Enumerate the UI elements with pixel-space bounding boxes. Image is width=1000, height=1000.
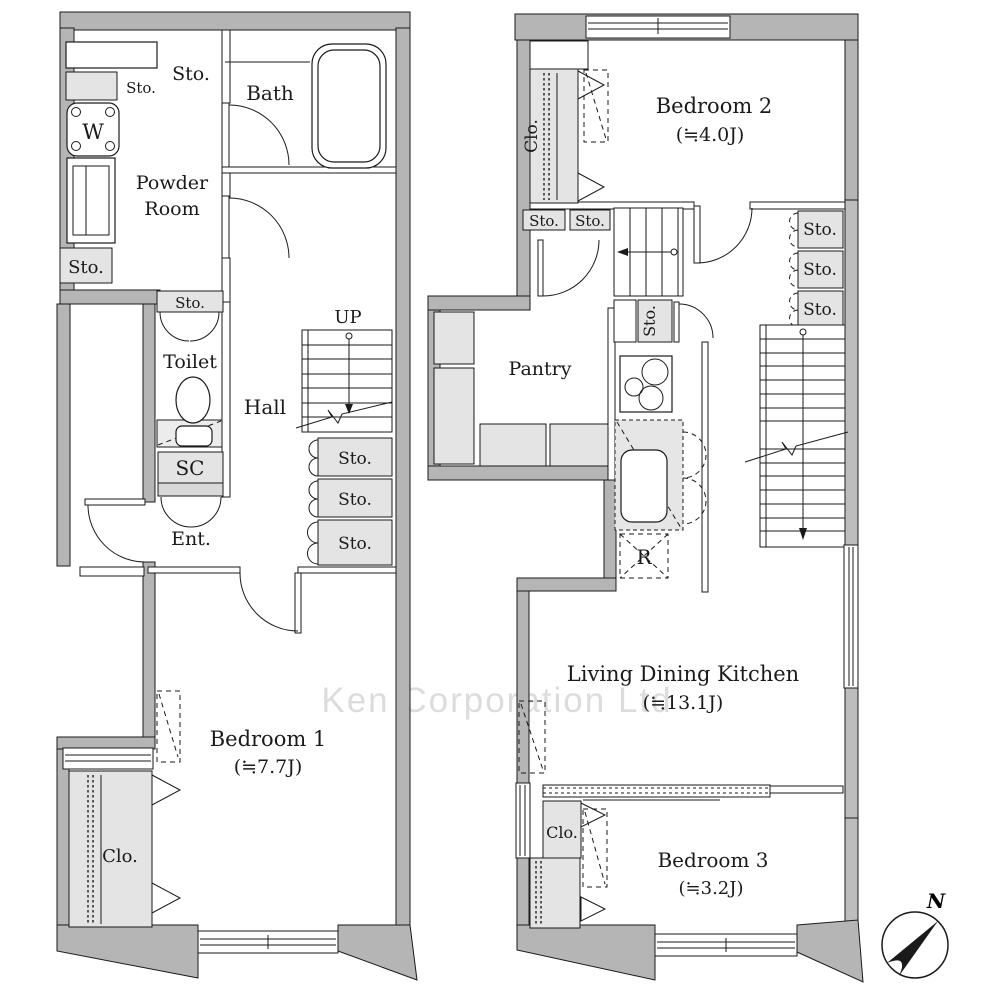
pantry-shelf [434, 312, 474, 364]
label-storage: Sto. [803, 220, 837, 240]
kitchen-door-leaf [674, 302, 679, 342]
bath-door-leaf [222, 103, 229, 167]
label-storage: Sto. [338, 490, 372, 510]
bedroom1-door-leaf [295, 573, 301, 633]
label-storage: Sto. [172, 63, 210, 85]
label-pantry: Pantry [509, 358, 572, 380]
vanity [67, 158, 115, 243]
double-door-arc [161, 497, 191, 527]
label-fridge: R [636, 545, 652, 569]
window-left [63, 748, 153, 769]
entry-door-arc [88, 505, 145, 562]
bedroom2-door-arc [697, 208, 752, 263]
label-closet: Clo. [102, 846, 138, 867]
label-bedroom2: Bedroom 2 [656, 94, 773, 118]
counter [530, 41, 588, 69]
floorplan-svg: Ken Corporation Ltd Ken Corporation Ltd [0, 0, 1000, 1000]
label-powder-room: Room [144, 198, 199, 220]
pantry-area [434, 312, 608, 466]
label-bedroom1: Bedroom 1 [210, 727, 327, 751]
powder-door-leaf [222, 196, 229, 258]
north-needle-icon [887, 921, 938, 976]
watermark-text: Ken Corporation Ltd [321, 681, 672, 720]
label-entrance: Ent. [171, 528, 211, 550]
sink-counter [615, 420, 706, 530]
bedroom3-closet [530, 801, 605, 928]
shoe-closet-base [158, 483, 223, 496]
compass: N [882, 889, 948, 978]
entry-door-leaf [85, 499, 145, 505]
pantry-counter [550, 424, 608, 466]
bath-door-arc [229, 105, 289, 165]
label-bedroom3: Bedroom 3 [657, 848, 768, 872]
label-bath: Bath [246, 81, 294, 105]
window-top [586, 16, 730, 38]
label-up: UP [334, 307, 361, 328]
stairs-first-floor [296, 330, 392, 432]
stairs-main-run [745, 325, 848, 547]
pantry-counter [480, 424, 546, 466]
label-storage: Sto. [68, 257, 104, 278]
label-powder-room: Powder [136, 172, 209, 194]
label-ldk: Living Dining Kitchen [567, 662, 799, 686]
double-door-arc [191, 497, 221, 527]
ac-unit-dashed [157, 691, 180, 762]
label-ldk-size: (≒13.1J) [643, 692, 724, 714]
storage-box [66, 72, 117, 100]
sink [621, 450, 667, 522]
second-floor: Clo. Bedroom 2 (≒4.0J) Sto. Sto. Sto. St… [428, 14, 863, 982]
label-toilet: Toilet [163, 351, 217, 373]
bifold-door-arc [160, 312, 189, 341]
label-storage: Sto. [803, 300, 837, 320]
label-storage: Sto. [175, 294, 205, 312]
bedroom1-door-arc [240, 573, 298, 631]
pantry-door-arc [543, 240, 599, 296]
label-washer: W [82, 120, 104, 144]
window-right [844, 545, 858, 688]
kitchen-door-arc [679, 304, 713, 338]
label-closet: Clo. [546, 823, 578, 842]
kitchen-cubby [614, 300, 636, 342]
label-storage: Sto. [338, 534, 372, 554]
stairs-upper-run [614, 208, 678, 296]
label-closet: Clo. [522, 119, 542, 153]
window-bottom-2f [655, 934, 797, 956]
sliding-partition [543, 785, 843, 800]
pantry-shelf [434, 368, 474, 464]
powder-door-arc [229, 198, 289, 258]
stove [620, 356, 672, 412]
window-ldk-left [516, 783, 530, 858]
label-bedroom3-size: (≒3.2J) [679, 878, 744, 899]
pantry-door-leaf [538, 240, 543, 296]
label-storage: Sto. [640, 305, 659, 337]
bifold-door-arc [190, 312, 219, 341]
label-storage: Sto. [803, 260, 837, 280]
label-storage: Sto. [529, 212, 559, 230]
label-hall: Hall [244, 395, 286, 419]
bathroom [222, 44, 386, 168]
counter [66, 42, 157, 68]
bedroom2-door-leaf [694, 206, 700, 263]
label-storage: Sto. [126, 79, 156, 97]
window-bottom [198, 931, 338, 953]
bathtub-inner [318, 50, 380, 162]
label-storage: Sto. [338, 449, 372, 469]
toilet-fixture [176, 377, 212, 446]
watermark: Ken Corporation Ltd Ken Corporation Ltd [321, 681, 673, 722]
floorplan-page: Ken Corporation Ltd Ken Corporation Ltd [0, 0, 1000, 1000]
label-storage: Sto. [575, 212, 605, 230]
first-floor: Sto. Sto. Bath W Powder Room Sto. Sto. T… [57, 12, 417, 980]
label-bedroom2-size: (≒4.0J) [676, 124, 745, 146]
label-shoe-closet: SC [175, 456, 204, 480]
label-bedroom1-size: (≒7.7J) [234, 756, 303, 778]
kitchen [614, 300, 713, 578]
north-label: N [926, 889, 946, 913]
